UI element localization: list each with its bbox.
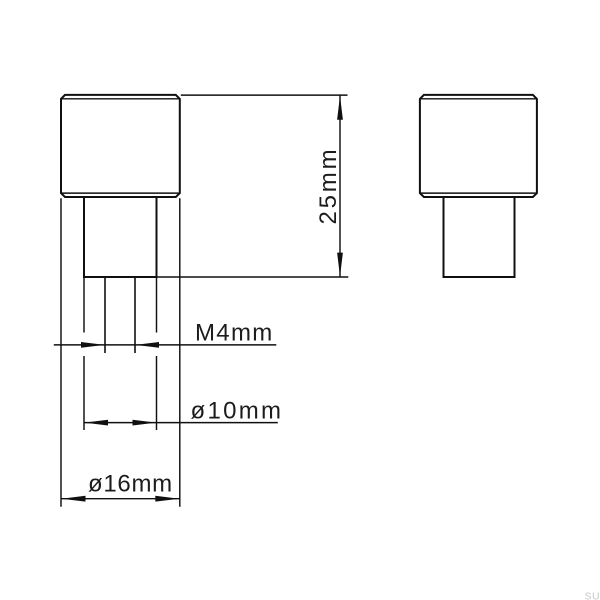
svg-text:SU: SU [585,591,600,600]
svg-text:ø16mm: ø16mm [88,471,173,498]
svg-text:ø10mm: ø10mm [191,398,284,425]
svg-text:M4mm: M4mm [195,320,274,347]
svg-text:25mm: 25mm [315,147,342,225]
